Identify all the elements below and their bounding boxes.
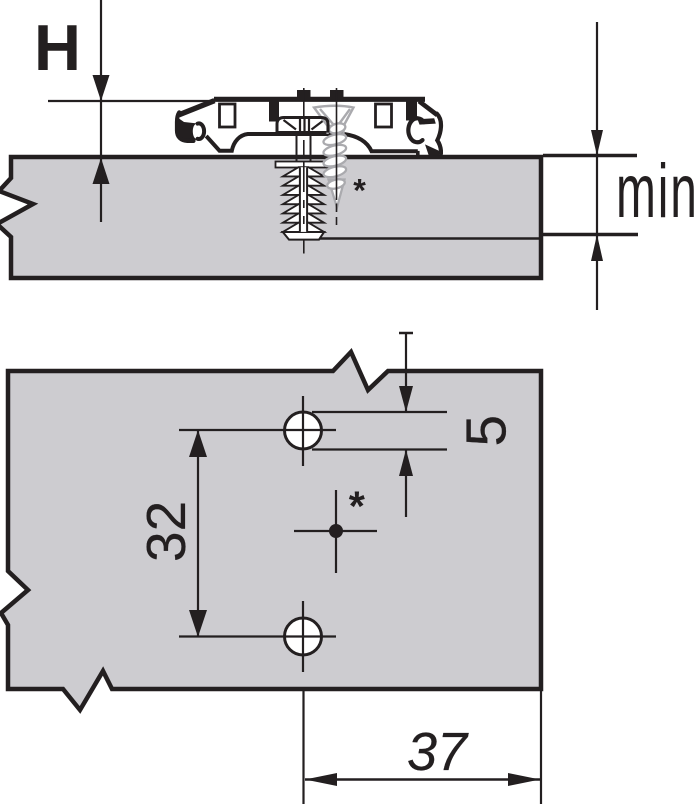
svg-text:min: min [616,150,699,234]
svg-text:32: 32 [135,501,197,562]
svg-text:5: 5 [455,415,519,447]
svg-text:*: * [353,172,366,208]
svg-text:*: * [349,483,366,529]
svg-text:H: H [34,11,81,84]
svg-text:37: 37 [407,722,469,782]
